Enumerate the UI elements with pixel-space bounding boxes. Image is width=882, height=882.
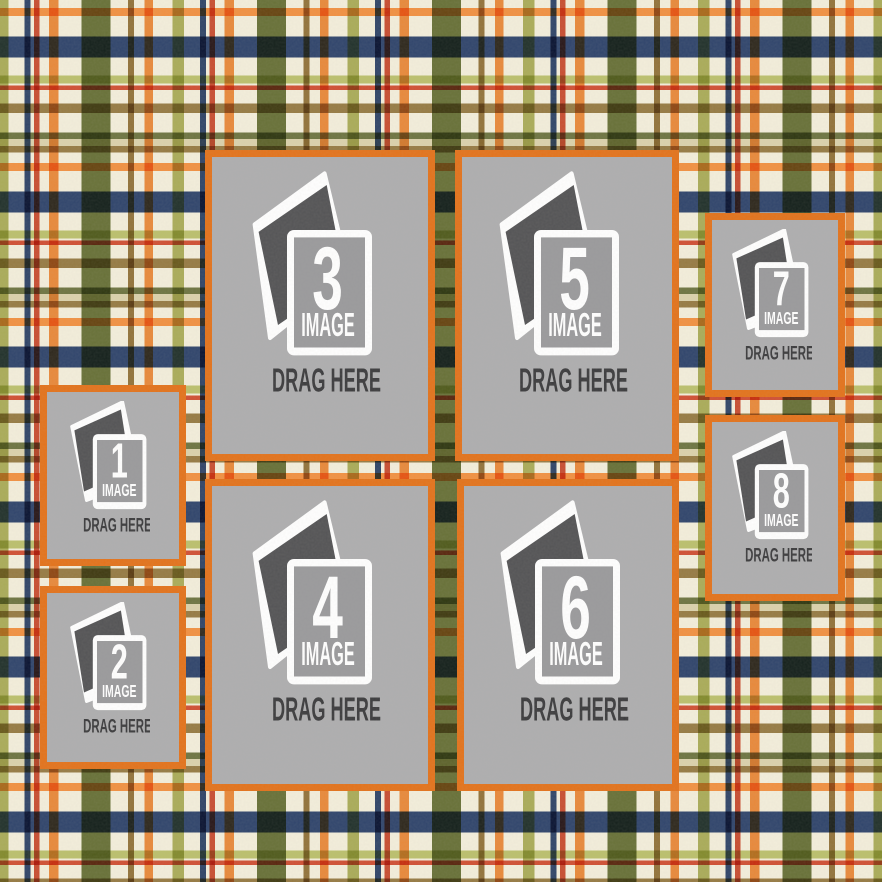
svg-text:IMAGE: IMAGE (102, 682, 136, 702)
svg-text:DRAG HERE: DRAG HERE (83, 717, 150, 737)
svg-text:DRAG HERE: DRAG HERE (519, 362, 628, 397)
svg-text:IMAGE: IMAGE (549, 636, 603, 673)
svg-text:IMAGE: IMAGE (764, 308, 798, 328)
svg-text:IMAGE: IMAGE (764, 510, 798, 530)
svg-text:DRAG HERE: DRAG HERE (745, 545, 812, 565)
svg-text:IMAGE: IMAGE (301, 636, 355, 673)
svg-text:DRAG HERE: DRAG HERE (272, 362, 381, 397)
svg-text:DRAG HERE: DRAG HERE (520, 691, 629, 726)
svg-text:IMAGE: IMAGE (548, 307, 602, 344)
svg-text:IMAGE: IMAGE (102, 481, 136, 501)
svg-text:DRAG HERE: DRAG HERE (745, 343, 812, 363)
svg-text:IMAGE: IMAGE (301, 307, 355, 344)
svg-text:DRAG HERE: DRAG HERE (272, 691, 381, 726)
svg-text:DRAG HERE: DRAG HERE (83, 516, 150, 536)
